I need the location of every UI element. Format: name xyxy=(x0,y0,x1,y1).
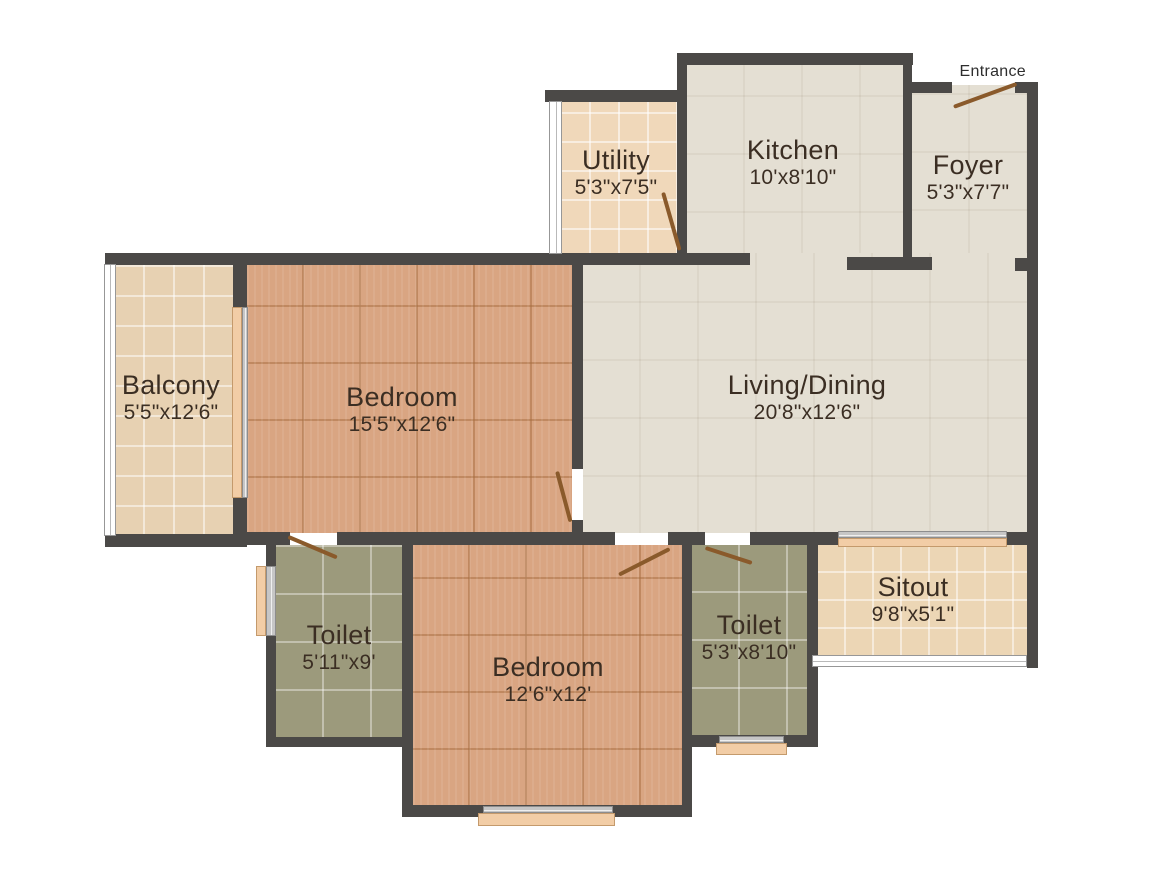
living-dining-name: Living/Dining xyxy=(667,370,947,401)
utility-label: Utility 5'3"x7'5" xyxy=(536,145,696,201)
sitout-slider-track xyxy=(838,531,1007,538)
kitchen-name: Kitchen xyxy=(693,135,893,166)
sitout-label: Sitout 9'8"x5'1" xyxy=(823,572,1003,628)
wall-balcony-divider-top xyxy=(233,253,247,309)
bedroom1-label: Bedroom 15'5"x12'6" xyxy=(302,382,502,438)
wall-kitchen-top xyxy=(678,53,913,65)
kitchen-dims: 10'x8'10" xyxy=(693,166,893,190)
utility-name: Utility xyxy=(536,145,696,176)
bedroom1-dims: 15'5"x12'6" xyxy=(302,413,502,437)
wall-kitchen-foyer-bottom xyxy=(847,257,932,270)
bedroom2-window xyxy=(483,806,613,813)
sitout-name: Sitout xyxy=(823,572,1003,603)
foyer-label: Foyer 5'3"x7'7" xyxy=(888,150,1048,206)
wall-bedroom1-right-upper xyxy=(572,265,583,469)
wall-balcony-bottom xyxy=(105,534,247,547)
balcony-dims: 5'5"x12'6" xyxy=(81,401,261,425)
wall-foyer-bottom-stub xyxy=(1015,258,1029,271)
bedroom2-label: Bedroom 12'6"x12' xyxy=(448,652,648,708)
living-dining-dims: 20'8"x12'6" xyxy=(667,401,947,425)
wall-main-horizontal xyxy=(105,253,750,265)
sitout-dims: 9'8"x5'1" xyxy=(823,603,1003,627)
bedroom2-name: Bedroom xyxy=(448,652,648,683)
sitout-slider-panel xyxy=(838,538,1007,547)
bedroom2-dims: 12'6"x12' xyxy=(448,683,648,707)
wall-bedroom1-bottom-left xyxy=(240,532,290,545)
entrance-label: Entrance xyxy=(941,63,1026,81)
foyer-dims: 5'3"x7'7" xyxy=(888,181,1048,205)
kitchen-label: Kitchen 10'x8'10" xyxy=(693,135,893,191)
balcony-name: Balcony xyxy=(81,370,261,401)
toilet2-label: Toilet 5'3"x8'10" xyxy=(669,610,829,666)
foyer-name: Foyer xyxy=(888,150,1048,181)
wall-utility-top xyxy=(545,90,687,102)
utility-dims: 5'3"x7'5" xyxy=(536,176,696,200)
wall-bedroom2-right xyxy=(682,532,692,817)
toilet2-name: Toilet xyxy=(669,610,829,641)
balcony-label: Balcony 5'5"x12'6" xyxy=(81,370,261,426)
toilet2-window-sill xyxy=(716,743,787,755)
toilet2-window xyxy=(719,736,784,743)
wall-toilet1-bottom xyxy=(266,737,413,747)
toilet1-name: Toilet xyxy=(259,620,419,651)
floor-plan: Entrance Utility 5'3"x7'5" Kitchen 10'x8… xyxy=(0,0,1160,870)
toilet1-dims: 5'11"x9' xyxy=(259,651,419,675)
bedroom2-window-sill xyxy=(478,813,615,826)
living-dining-label: Living/Dining 20'8"x12'6" xyxy=(667,370,947,426)
toilet2-dims: 5'3"x8'10" xyxy=(669,641,829,665)
toilet1-label: Toilet 5'11"x9' xyxy=(259,620,419,676)
sitout-railing xyxy=(812,655,1027,667)
bedroom1-name: Bedroom xyxy=(302,382,502,413)
wall-sitout-top-right xyxy=(1007,532,1027,545)
wall-sitout-top-left xyxy=(818,532,838,545)
wall-bedroom1-bottom-right xyxy=(337,532,615,545)
wall-foyer-top-left xyxy=(912,82,952,93)
wall-toilet2-top-right xyxy=(750,532,807,545)
